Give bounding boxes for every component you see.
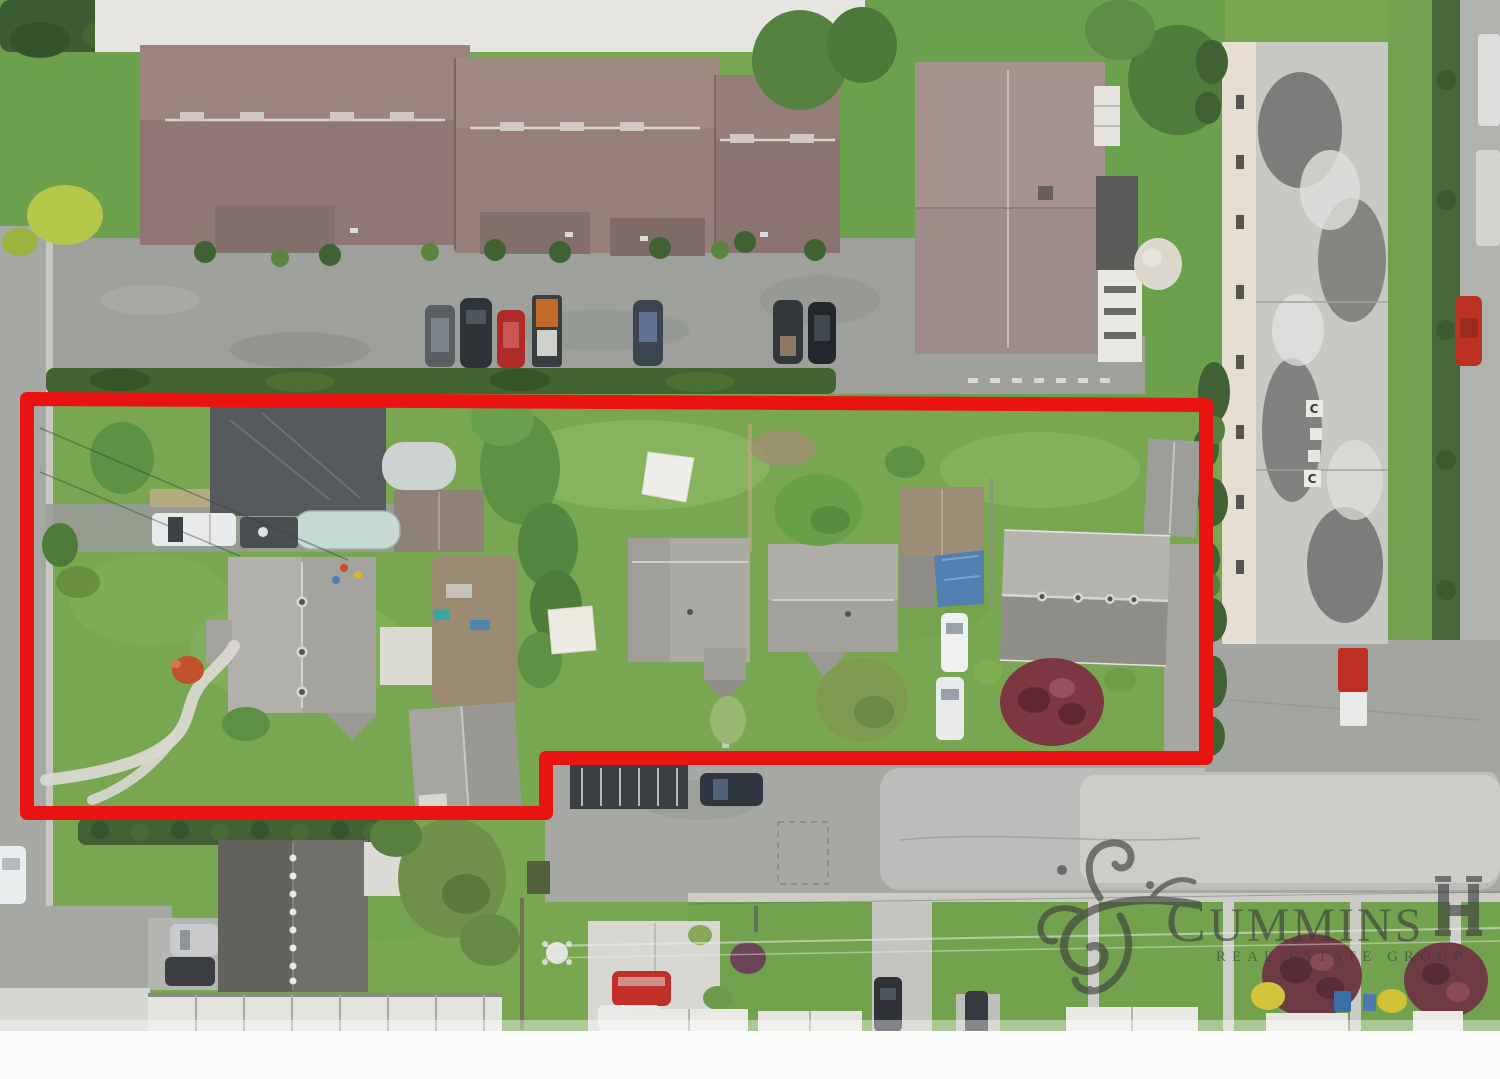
patio-deck — [380, 627, 432, 685]
silver-suv — [170, 924, 218, 956]
boundary-hedge — [46, 368, 836, 394]
dark-blue-car — [700, 773, 763, 806]
shade-sail — [642, 452, 694, 502]
roof-letter-c1: C — [1310, 402, 1319, 416]
carport-tarp — [900, 487, 984, 608]
right-shed — [1144, 439, 1201, 538]
building-wall — [1222, 42, 1258, 644]
white-car — [941, 613, 968, 672]
townhouse-complex — [95, 0, 865, 267]
yellow-flower-bush — [1251, 982, 1285, 1010]
blue-bin — [1334, 991, 1351, 1012]
yellow-bush — [27, 185, 103, 245]
maple-tree — [1000, 658, 1104, 746]
watermark-subtitle: REAL ESTATE GROUP — [1216, 949, 1468, 965]
white-car — [936, 677, 964, 740]
dark-outbuilding — [210, 404, 386, 516]
dark-car — [165, 957, 215, 986]
shade-sail — [548, 606, 596, 654]
pergola — [570, 764, 688, 809]
white-pickup-truck — [152, 513, 236, 546]
parked-suv — [460, 298, 492, 368]
blue-bin — [1363, 994, 1376, 1011]
roof-letter-c2: C — [1308, 472, 1317, 486]
backyard-shed — [409, 702, 522, 813]
yellow-flower-bush — [1377, 989, 1407, 1013]
aerial-drone-photo: C C — [0, 0, 1500, 1079]
red-truck — [1338, 648, 1368, 726]
main-house-right — [1000, 529, 1171, 667]
white-car-left-street — [0, 846, 26, 904]
red-car-bottom — [612, 971, 671, 1006]
utility-trailer — [240, 517, 298, 548]
dirt-yard — [432, 556, 518, 706]
purple-bush — [730, 942, 766, 974]
commercial-building: C C — [1193, 0, 1500, 772]
